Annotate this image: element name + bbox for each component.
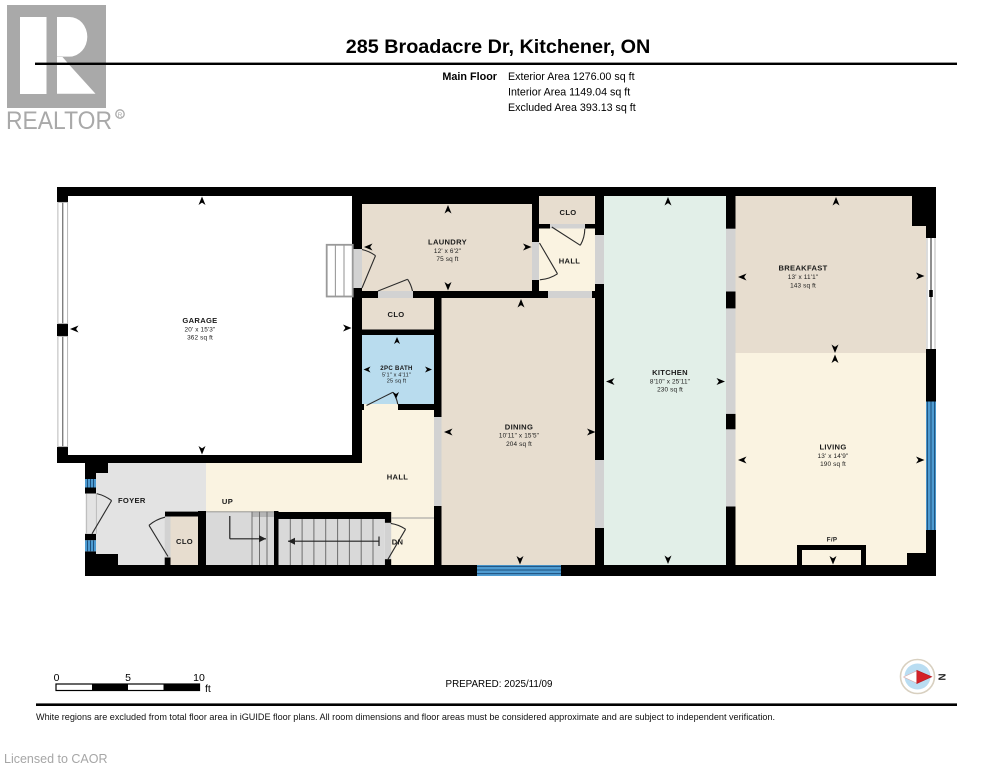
svg-text:13' x 11'1": 13' x 11'1" — [788, 274, 818, 281]
svg-text:10: 10 — [193, 672, 205, 684]
svg-text:2PC BATH: 2PC BATH — [380, 365, 412, 372]
svg-text:KITCHEN: KITCHEN — [652, 368, 688, 377]
svg-text:285 Broadacre Dr, Kitchener, O: 285 Broadacre Dr, Kitchener, ON — [346, 36, 651, 58]
svg-text:REALTOR: REALTOR — [6, 107, 112, 135]
svg-text:DN: DN — [392, 538, 404, 547]
svg-text:5'1" x 4'11": 5'1" x 4'11" — [382, 372, 411, 378]
svg-text:HALL: HALL — [559, 257, 581, 266]
svg-text:PREPARED: 2025/11/09: PREPARED: 2025/11/09 — [446, 679, 553, 690]
svg-text:Licensed to CAOR: Licensed to CAOR — [4, 752, 108, 766]
svg-text:DINING: DINING — [505, 422, 533, 431]
svg-text:230 sq ft: 230 sq ft — [657, 387, 683, 394]
svg-text:N: N — [935, 673, 946, 680]
svg-text:190 sq ft: 190 sq ft — [820, 461, 846, 468]
svg-text:R: R — [118, 112, 123, 119]
svg-text:CLO: CLO — [176, 537, 193, 546]
svg-text:5: 5 — [125, 672, 131, 684]
svg-text:Main Floor: Main Floor — [442, 71, 497, 83]
svg-text:143 sq ft: 143 sq ft — [790, 282, 816, 289]
svg-text:13' x 14'9": 13' x 14'9" — [818, 453, 849, 460]
svg-text:CLO: CLO — [560, 208, 577, 217]
svg-text:CLO: CLO — [388, 310, 405, 319]
svg-text:LIVING: LIVING — [819, 443, 846, 452]
svg-text:F/P: F/P — [827, 537, 838, 544]
svg-text:8'10" x 25'11": 8'10" x 25'11" — [650, 378, 690, 385]
svg-text:0: 0 — [54, 672, 60, 684]
svg-text:25 sq ft: 25 sq ft — [387, 379, 407, 385]
svg-text:BREAKFAST: BREAKFAST — [778, 264, 827, 273]
svg-text:Interior Area 1149.04 sq ft: Interior Area 1149.04 sq ft — [508, 87, 630, 99]
svg-text:White regions are excluded fro: White regions are excluded from total fl… — [36, 712, 775, 722]
svg-text:Exterior Area 1276.00 sq ft: Exterior Area 1276.00 sq ft — [508, 71, 635, 83]
svg-text:FOYER: FOYER — [118, 496, 146, 505]
svg-text:204 sq ft: 204 sq ft — [506, 441, 532, 448]
svg-text:75 sq ft: 75 sq ft — [436, 256, 458, 263]
svg-text:LAUNDRY: LAUNDRY — [428, 238, 467, 247]
svg-text:10'11" x 15'5": 10'11" x 15'5" — [499, 433, 539, 440]
svg-text:UP: UP — [222, 497, 233, 506]
svg-text:362 sq ft: 362 sq ft — [187, 335, 213, 342]
svg-text:HALL: HALL — [387, 473, 409, 482]
svg-text:12' x 6'2": 12' x 6'2" — [434, 248, 461, 255]
svg-text:GARAGE: GARAGE — [182, 316, 217, 325]
svg-text:ft: ft — [205, 683, 211, 695]
svg-text:20' x 15'3": 20' x 15'3" — [185, 326, 216, 333]
svg-text:Excluded Area 393.13 sq ft: Excluded Area 393.13 sq ft — [508, 102, 636, 114]
